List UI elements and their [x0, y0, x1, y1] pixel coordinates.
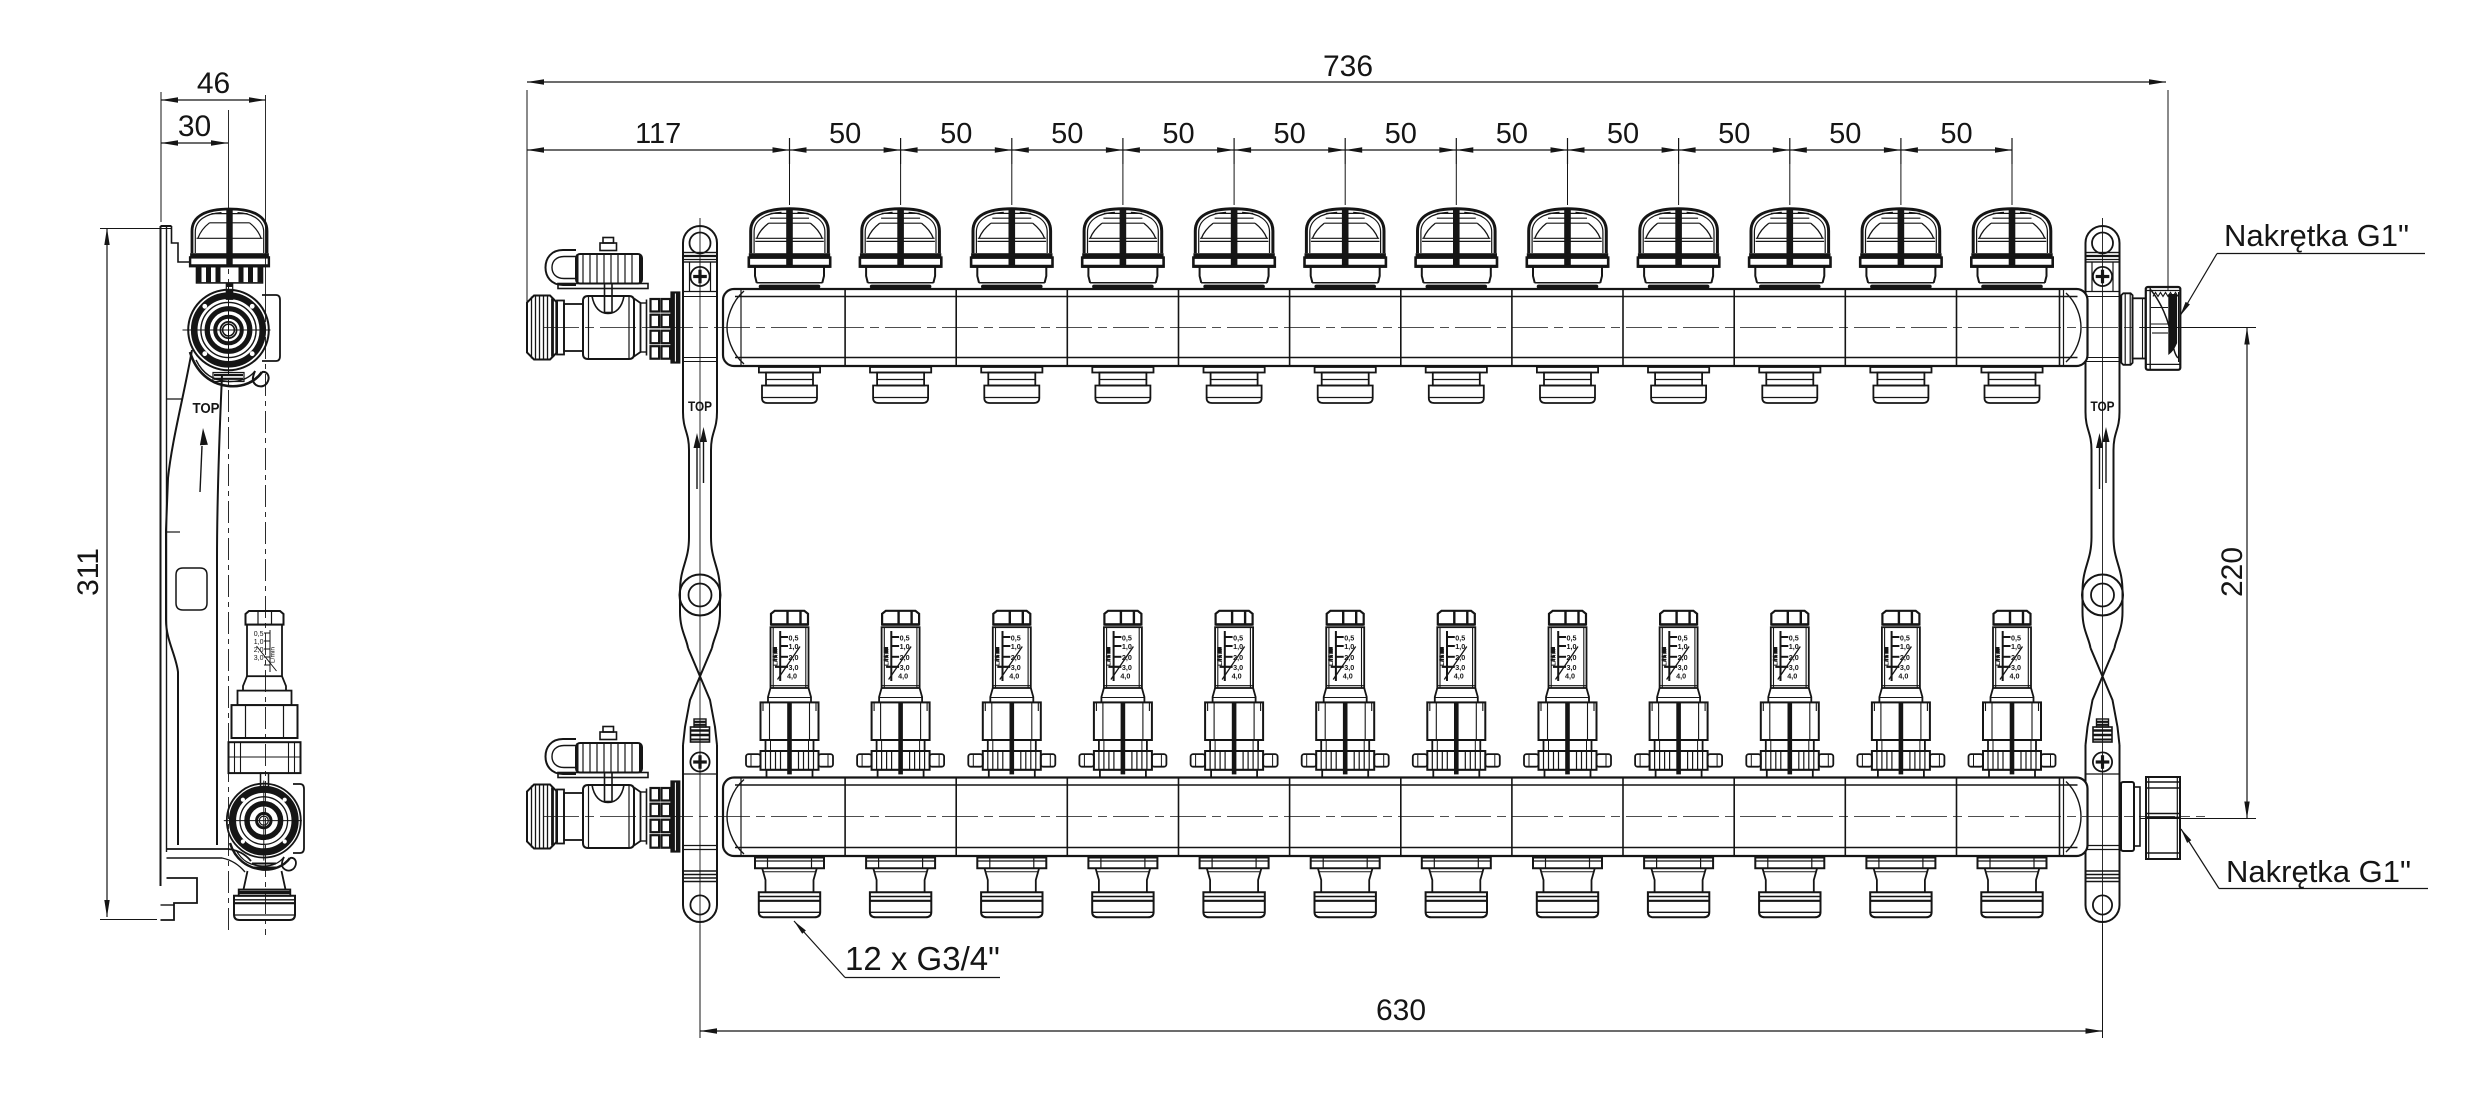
- svg-text:0,5: 0,5: [1455, 633, 1465, 642]
- svg-text:3,0: 3,0: [1344, 663, 1354, 672]
- svg-text:117: 117: [635, 118, 681, 150]
- svg-text:1,0: 1,0: [254, 639, 264, 646]
- svg-text:0,5: 0,5: [1233, 633, 1243, 642]
- svg-text:4,0: 4,0: [787, 672, 797, 681]
- svg-text:12 x G3/4": 12 x G3/4": [845, 940, 1000, 977]
- svg-text:46: 46: [197, 67, 230, 100]
- svg-text:50: 50: [1829, 118, 1861, 150]
- svg-text:L/min: L/min: [270, 647, 277, 663]
- svg-text:4,0: 4,0: [1787, 672, 1797, 681]
- svg-text:3,0: 3,0: [1122, 663, 1132, 672]
- svg-text:3,0: 3,0: [1455, 663, 1465, 672]
- svg-text:4,0: 4,0: [1343, 672, 1353, 681]
- svg-text:0,5: 0,5: [1789, 633, 1799, 642]
- svg-text:0,5: 0,5: [1011, 633, 1021, 642]
- svg-text:4,0: 4,0: [2010, 672, 2020, 681]
- svg-text:4,0: 4,0: [1565, 672, 1575, 681]
- svg-text:50: 50: [940, 118, 972, 150]
- svg-text:3,0: 3,0: [789, 663, 799, 672]
- svg-text:0,5: 0,5: [254, 631, 264, 638]
- svg-text:3,0: 3,0: [254, 655, 264, 662]
- svg-text:50: 50: [829, 118, 861, 150]
- svg-text:3,0: 3,0: [2011, 663, 2021, 672]
- svg-text:50: 50: [1607, 118, 1639, 150]
- svg-text:311: 311: [72, 548, 105, 596]
- svg-text:3,0: 3,0: [900, 663, 910, 672]
- svg-text:0,5: 0,5: [1344, 633, 1354, 642]
- svg-text:50: 50: [1496, 118, 1528, 150]
- svg-text:0,5: 0,5: [1567, 633, 1577, 642]
- svg-text:3,0: 3,0: [1011, 663, 1021, 672]
- svg-text:0,5: 0,5: [2011, 633, 2021, 642]
- svg-text:50: 50: [1162, 118, 1194, 150]
- svg-text:4,0: 4,0: [1454, 672, 1464, 681]
- svg-text:30: 30: [178, 110, 211, 143]
- svg-text:3,0: 3,0: [1900, 663, 1910, 672]
- svg-text:630: 630: [1376, 994, 1426, 1027]
- svg-text:4,0: 4,0: [1232, 672, 1242, 681]
- svg-text:50: 50: [1385, 118, 1417, 150]
- svg-text:3,0: 3,0: [1789, 663, 1799, 672]
- svg-text:50: 50: [1718, 118, 1750, 150]
- svg-text:736: 736: [1323, 50, 1373, 83]
- svg-text:4,0: 4,0: [898, 672, 908, 681]
- svg-text:0,5: 0,5: [900, 633, 910, 642]
- svg-text:3,0: 3,0: [1233, 663, 1243, 672]
- svg-text:50: 50: [1051, 118, 1083, 150]
- svg-text:0,5: 0,5: [1122, 633, 1132, 642]
- svg-text:0,5: 0,5: [789, 633, 799, 642]
- svg-text:Nakrętka G1": Nakrętka G1": [2224, 218, 2409, 253]
- svg-text:0,5: 0,5: [1900, 633, 1910, 642]
- svg-text:Nakrętka G1": Nakrętka G1": [2226, 854, 2411, 889]
- svg-text:4,0: 4,0: [1898, 672, 1908, 681]
- svg-text:4,0: 4,0: [1009, 672, 1019, 681]
- svg-text:3,0: 3,0: [1567, 663, 1577, 672]
- svg-text:0,5: 0,5: [1678, 633, 1688, 642]
- svg-text:4,0: 4,0: [1676, 672, 1686, 681]
- svg-text:50: 50: [1273, 118, 1305, 150]
- svg-text:3,0: 3,0: [1678, 663, 1688, 672]
- svg-text:4,0: 4,0: [1120, 672, 1130, 681]
- svg-text:220: 220: [2216, 547, 2249, 597]
- svg-text:TOP: TOP: [193, 401, 220, 417]
- svg-text:50: 50: [1940, 118, 1972, 150]
